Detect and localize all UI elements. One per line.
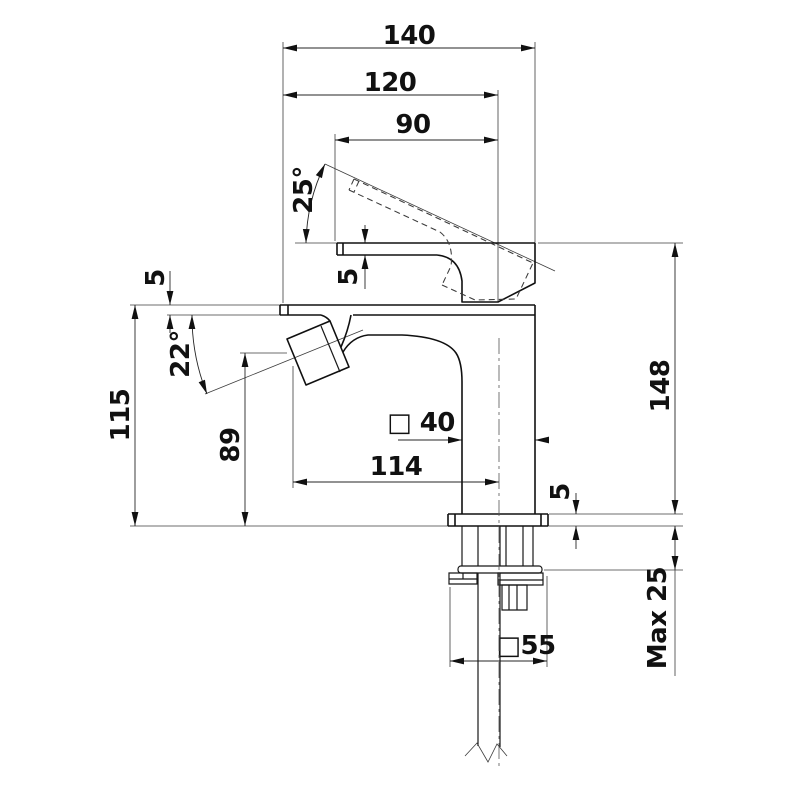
clamp-right [498, 573, 543, 585]
dim-label-sq40: □ 40 [387, 408, 455, 438]
dim-label-22deg: 22° [166, 330, 196, 378]
handle [287, 321, 349, 385]
angle-reference-lines [205, 164, 555, 394]
body-top-deck [280, 305, 535, 315]
dim-label-148: 148 [646, 360, 676, 413]
mounting-nut [502, 585, 527, 610]
dim-label-140: 140 [383, 21, 436, 51]
dim-label-114: 114 [370, 452, 423, 482]
shank-lines [462, 526, 533, 566]
technical-drawing: 140 120 90 25° 5 5 22° 115 89 148 □ 40 1… [0, 0, 800, 800]
dim-label-5-plate: 5 [546, 483, 576, 501]
dim-label-5-spout: 5 [334, 268, 364, 286]
faucet-outline [280, 243, 548, 526]
ref-line-22deg [205, 330, 363, 394]
pipe-break-symbol [465, 743, 507, 762]
drawing-canvas: 140 120 90 25° 5 5 22° 115 89 148 □ 40 1… [0, 0, 800, 800]
dim-label-25deg: 25° [289, 166, 319, 214]
handle-neck [321, 315, 351, 347]
dim-label-89: 89 [216, 427, 246, 462]
dim-label-max25: Max 25 [643, 567, 673, 669]
base-plate [448, 514, 548, 526]
handle-cap-line [321, 326, 340, 372]
dim-label-115: 115 [106, 389, 136, 442]
dim-label-120: 120 [364, 68, 417, 98]
mounting-hardware [449, 338, 543, 768]
dim-label-5-lip: 5 [141, 269, 171, 287]
dimension-labels: 140 120 90 25° 5 5 22° 115 89 148 □ 40 1… [106, 21, 676, 669]
spout-head [337, 243, 535, 302]
dim-label-90: 90 [395, 110, 430, 140]
dashed-lever-top-edge [354, 179, 533, 263]
dim-label-sq55: □55 [496, 631, 555, 661]
washer [458, 566, 542, 573]
clamp-left [449, 573, 477, 584]
lever-open-position-dashed [349, 179, 533, 300]
dashed-lever-back [442, 263, 533, 300]
